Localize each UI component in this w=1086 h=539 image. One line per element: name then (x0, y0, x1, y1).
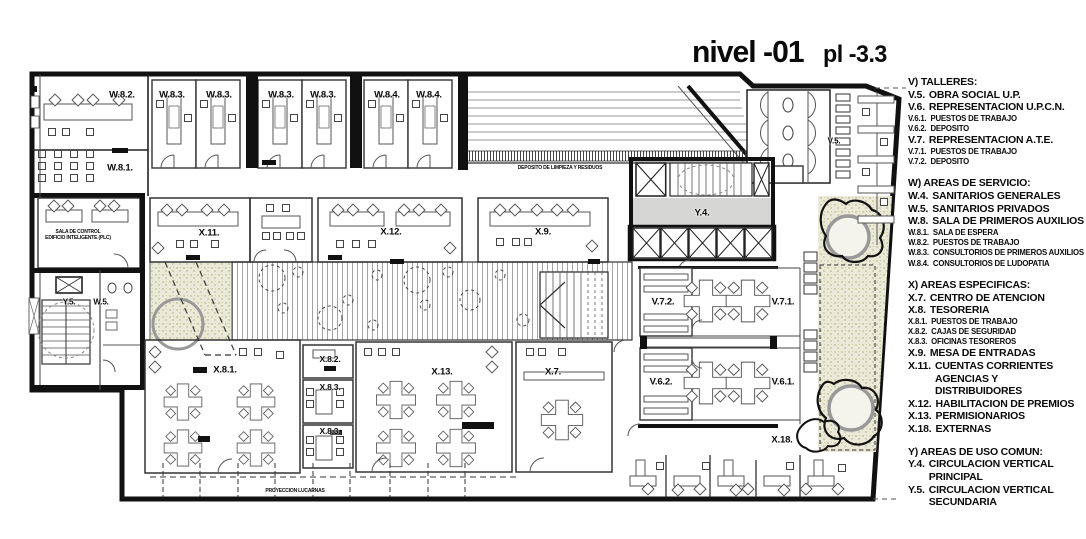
legend-item-code: Y.5. (908, 484, 925, 509)
legend-item-w4: W.4.SANITARIOS GENERALES (908, 190, 1084, 203)
legend-item-label: TESORERIA (930, 304, 989, 317)
legend-item-code: X.18. (908, 423, 932, 436)
legend-item-code: V.7.2. (908, 157, 926, 167)
legend-item-v7: V.7.REPRESENTACION A.T.E. (908, 134, 1084, 147)
legend-item-x82: X.8.2.CAJAS DE SEGURIDAD (908, 327, 1084, 337)
legend-item-code: W.8.1. (908, 228, 929, 238)
legend-item-x7: X.7.CENTRO DE ATENCION (908, 292, 1084, 305)
legend-item-x11: X.11.CUENTAS CORRIENTES AGENCIAS Y DISTR… (908, 360, 1084, 398)
legend-item-label: SANITARIOS PRIVADOS (932, 203, 1049, 216)
legend-heading: V) TALLERES: (908, 76, 1084, 89)
legend-item-label: PUESTOS DE TRABAJO (930, 147, 1016, 157)
legend-item-w5: W.5.SANITARIOS PRIVADOS (908, 203, 1084, 216)
legend-item-label: DEPOSITO (930, 157, 969, 167)
legend-item-v6: V.6.REPRESENTACION U.P.C.N. (908, 101, 1084, 114)
legend-item-label: CENTRO DE ATENCION (930, 292, 1045, 305)
legend-item-code: W.8.4. (908, 259, 929, 269)
legend-item-code: V.6.2. (908, 124, 926, 134)
legend-item-label: REPRESENTACION A.T.E. (929, 134, 1053, 147)
legend-item-label: PERMISIONARIOS (936, 410, 1025, 423)
legend-item-label: PUESTOS DE TRABAJO (931, 317, 1017, 327)
legend-item-label: PUESTOS DE TRABAJO (933, 238, 1019, 248)
legend-item-code: V.6. (908, 101, 925, 114)
legend-item-label: CIRCULACION VERTICAL PRINCIPAL (929, 458, 1054, 483)
legend-item-w81: W.8.1.SALA DE ESPERA (908, 228, 1084, 238)
legend-item-label: DEPOSITO (930, 124, 969, 134)
legend-item-label: CONSULTORIOS DE LUDOPATIA (933, 259, 1050, 269)
legend-item-label: CONSULTORIOS DE PRIMEROS AUXILIOS (933, 248, 1084, 258)
legend-item-x12: X.12.HABILITACION DE PREMIOS (908, 398, 1084, 411)
plan-level: nivel -01 (692, 34, 804, 70)
legend-item-v71: V.7.1.PUESTOS DE TRABAJO (908, 147, 1084, 157)
legend-item-code: X.8.2. (908, 327, 927, 337)
legend-item-code: V.7. (908, 134, 925, 147)
legend-item-code: W.5. (908, 203, 928, 216)
legend-heading: X) AREAS ESPECIFICAS: (908, 279, 1084, 292)
legend-item-code: Y.4. (908, 458, 925, 483)
legend-item-code: W.8.2. (908, 238, 929, 248)
legend-item-label: SANITARIOS GENERALES (932, 190, 1060, 203)
legend-heading: W) AREAS DE SERVICIO: (908, 177, 1084, 190)
legend-item-label: OFICINAS TESOREROS (931, 337, 1016, 347)
legend-item-y4: Y.4.CIRCULACION VERTICAL PRINCIPAL (908, 458, 1084, 483)
legend-item-w84: W.8.4.CONSULTORIOS DE LUDOPATIA (908, 259, 1084, 269)
legend-item-code: X.8.3. (908, 337, 927, 347)
legend-item-code: X.12. (908, 398, 932, 411)
legend-item-code: X.11. (908, 360, 931, 398)
legend-section-1: W) AREAS DE SERVICIO:W.4.SANITARIOS GENE… (908, 177, 1084, 268)
legend-item-code: W.8.3. (908, 248, 929, 258)
legend-item-x83: X.8.3.OFICINAS TESOREROS (908, 337, 1084, 347)
legend-item-label: OBRA SOCIAL U.P. (929, 89, 1021, 102)
legend-section-2: X) AREAS ESPECIFICAS:X.7.CENTRO DE ATENC… (908, 279, 1084, 436)
legend-item-label: SALA DE ESPERA (933, 228, 998, 238)
plan-elevation: pl -3.3 (823, 41, 887, 69)
legend-item-v5: V.5.OBRA SOCIAL U.P. (908, 89, 1084, 102)
legend-item-x8: X.8.TESORERIA (908, 304, 1084, 317)
legend-item-w82: W.8.2.PUESTOS DE TRABAJO (908, 238, 1084, 248)
legend-item-label: CUENTAS CORRIENTES AGENCIAS Y DISTRIBUID… (935, 360, 1084, 398)
legend-item-label: EXTERNAS (936, 423, 992, 436)
legend-item-x13: X.13.PERMISIONARIOS (908, 410, 1084, 423)
legend-item-x81: X.8.1.PUESTOS DE TRABAJO (908, 317, 1084, 327)
legend-item-code: X.7. (908, 292, 926, 305)
legend-item-label: REPRESENTACION U.P.C.N. (929, 101, 1065, 114)
legend-item-code: W.8. (908, 215, 928, 228)
legend-item-label: PUESTOS DE TRABAJO (930, 114, 1016, 124)
legend-item-y5: Y.5.CIRCULACION VERTICAL SECUNDARIA (908, 484, 1084, 509)
legend-item-label: MESA DE ENTRADAS (930, 347, 1036, 360)
legend-item-code: X.9. (908, 347, 926, 360)
legend-item-code: X.8. (908, 304, 926, 317)
legend-section-3: Y) AREAS DE USO COMUN:Y.4.CIRCULACION VE… (908, 446, 1084, 509)
legend-item-code: X.8.1. (908, 317, 927, 327)
floor-plan-page: nivel -01 pl -3.3 V) TALLERES:V.5.OBRA S… (0, 0, 1086, 539)
legend-heading: Y) AREAS DE USO COMUN: (908, 446, 1084, 459)
legend-item-w83: W.8.3.CONSULTORIOS DE PRIMEROS AUXILIOS (908, 248, 1084, 258)
legend-item-code: V.7.1. (908, 147, 926, 157)
legend-item-v62: V.6.2.DEPOSITO (908, 124, 1084, 134)
legend-item-code: X.13. (908, 410, 932, 423)
legend-item-label: SALA DE PRIMEROS AUXILIOS (932, 215, 1084, 228)
legend-item-label: CIRCULACION VERTICAL SECUNDARIA (929, 484, 1054, 509)
legend-section-0: V) TALLERES:V.5.OBRA SOCIAL U.P.V.6.REPR… (908, 76, 1084, 167)
legend-item-x18: X.18.EXTERNAS (908, 423, 1084, 436)
legend-item-x9: X.9.MESA DE ENTRADAS (908, 347, 1084, 360)
legend-item-code: V.6.1. (908, 114, 926, 124)
legend: V) TALLERES:V.5.OBRA SOCIAL U.P.V.6.REPR… (908, 76, 1084, 519)
legend-item-label: CAJAS DE SEGURIDAD (931, 327, 1016, 337)
legend-item-label: HABILITACION DE PREMIOS (936, 398, 1075, 411)
legend-item-code: V.5. (908, 89, 925, 102)
legend-item-v61: V.6.1.PUESTOS DE TRABAJO (908, 114, 1084, 124)
plan-title: nivel -01 pl -3.3 (692, 34, 887, 70)
legend-item-w8: W.8.SALA DE PRIMEROS AUXILIOS (908, 215, 1084, 228)
legend-item-v72: V.7.2.DEPOSITO (908, 157, 1084, 167)
legend-item-code: W.4. (908, 190, 928, 203)
